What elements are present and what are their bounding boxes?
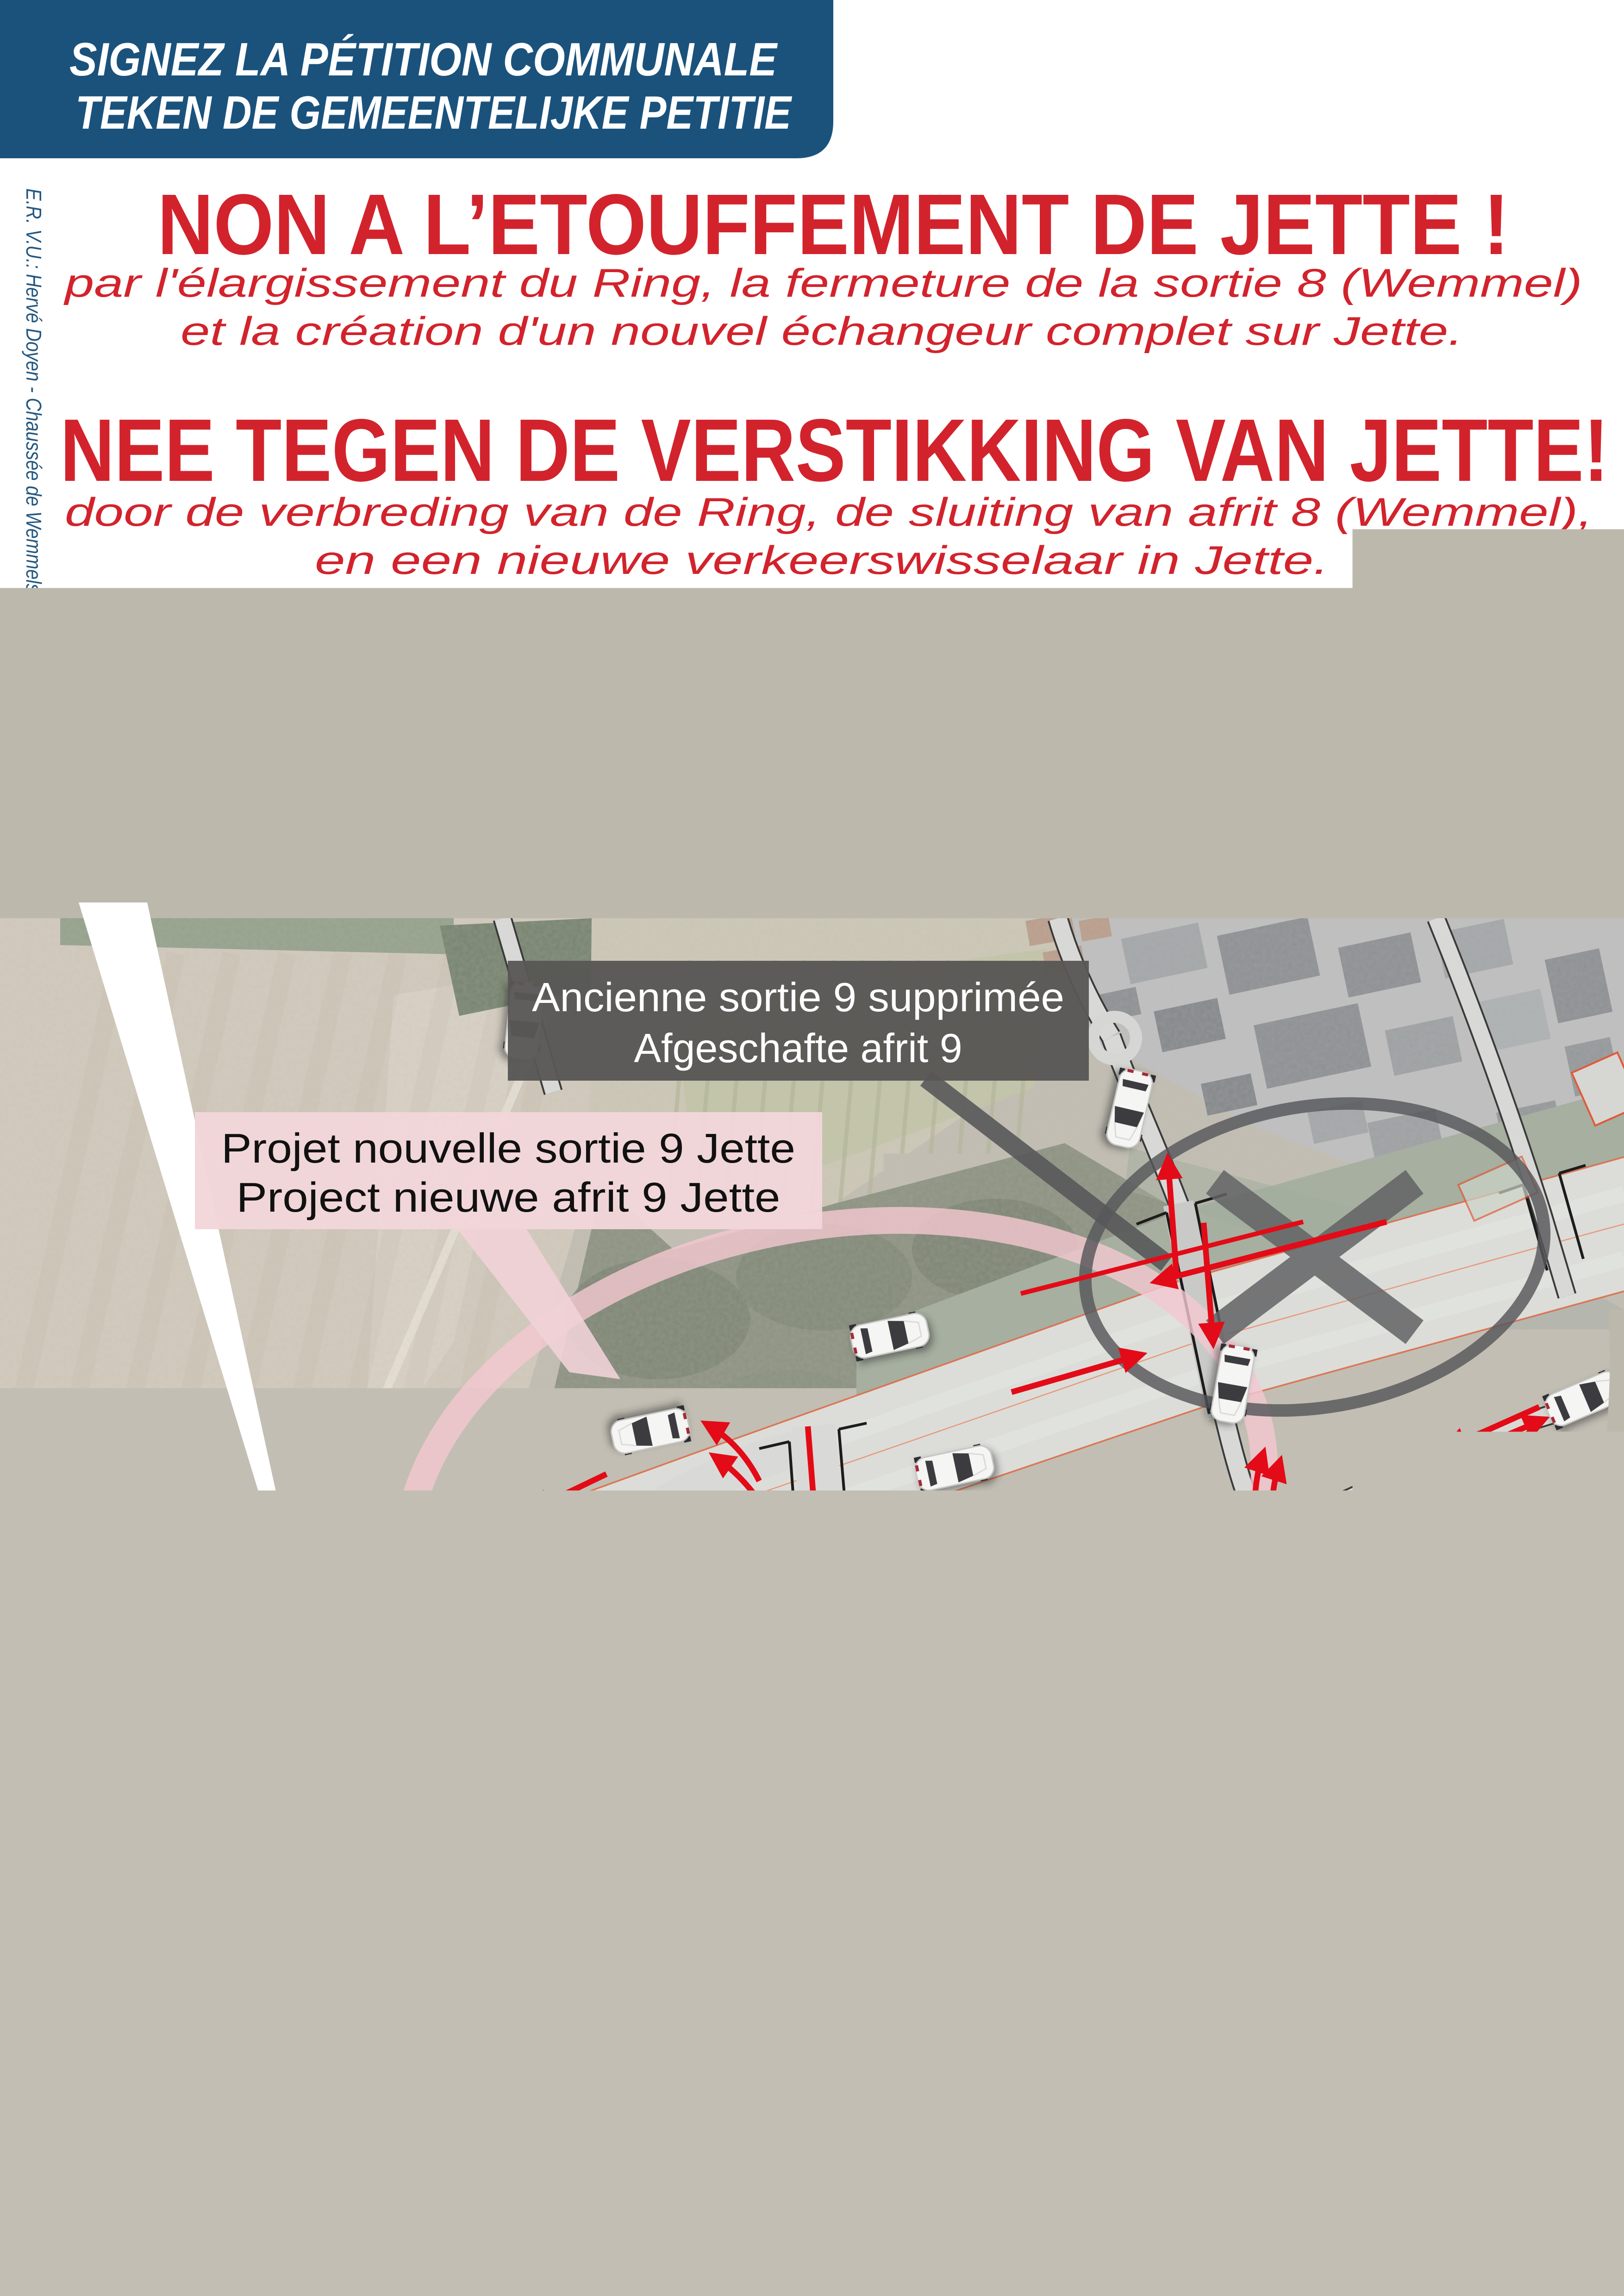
svg-text:E.R. V.U.: Hervé Doyen - Chaus: E.R. V.U.: Hervé Doyen - Chaussée de Wem… bbox=[22, 188, 46, 820]
svg-text:Jette: Jette bbox=[1305, 2122, 1605, 2252]
svg-text:tie op www.jette.be of op papi: tie op www.jette.be of op papier: in het… bbox=[70, 1994, 686, 2030]
svg-text:par l'élargissement du Ring, l: par l'élargissement du Ring, la fermetur… bbox=[63, 261, 1582, 305]
svg-text:door de verbreding van de Ring: door de verbreding van de Ring, de sluit… bbox=[65, 490, 1593, 535]
svg-text:en een nieuwe verkeerswisselaa: en een nieuwe verkeerswisselaar in Jette… bbox=[315, 538, 1329, 583]
svg-text:Tentoonstellingslaan: Tentoonstellingslaan bbox=[1391, 1671, 1581, 1697]
svg-text:Culturel ou au GC Essegem - Te: Culturel ou au GC Essegem - Teken de pet… bbox=[70, 1958, 686, 1994]
svg-text:Une action du Collège des Bour: Une action du Collège des Bourgmestre et… bbox=[70, 2138, 1087, 2163]
svg-text:NON A L’ETOUFFEMENT DE JETTE !: NON A L’ETOUFFEMENT DE JETTE ! bbox=[157, 177, 1509, 273]
svg-text:dans les bibliothèques communa: dans les bibliothèques communales, au Ce… bbox=[70, 1921, 686, 1957]
svg-text:meentehuis, in het OCMW, in de: meentehuis, in het OCMW, in de BIB, in G… bbox=[70, 2031, 686, 2067]
svg-text:Jardins de Jette: Jardins de Jette bbox=[962, 1999, 1130, 2026]
svg-text:TEKEN DE GEMEENTELIJKE PETITIE: TEKEN DE GEMEENTELIJKE PETITIE bbox=[75, 87, 792, 139]
svg-text:Ancienne sortie 9 supprimée: Ancienne sortie 9 supprimée bbox=[532, 974, 1064, 1020]
svg-text:Afgeschafte afrit 9: Afgeschafte afrit 9 bbox=[634, 1025, 962, 1071]
svg-text:Av. de l'Arbre Ballon: Av. de l'Arbre Ballon bbox=[942, 1512, 1155, 1539]
svg-text:gem of het Centre Culturel.: gem of het Centre Culturel. bbox=[70, 2067, 459, 2103]
svg-text:NEE TEGEN DE VERSTIKKING VAN J: NEE TEGEN DE VERSTIKKING VAN JETTE! bbox=[60, 400, 1609, 500]
svg-text:Projet nouvelle sortie 9 Jette: Projet nouvelle sortie 9 Jette bbox=[221, 1126, 795, 1172]
svg-text:SIGNEZ LA PÉTITION COMMUNALE: SIGNEZ LA PÉTITION COMMUNALE bbox=[69, 34, 778, 86]
svg-text:12 BANDES / RIJSTROKEN: 12 BANDES / RIJSTROKEN bbox=[103, 689, 495, 722]
svg-text:sur papier : à la maison commu: sur papier : à la maison communale, au C… bbox=[70, 1885, 686, 1921]
svg-text:en Leefmilieu Claire Vandevive: en Leefmilieu Claire Vandevivere. bbox=[70, 2228, 430, 2253]
svg-text:du Développement durable et de: du Développement durable et de l'Environ… bbox=[70, 2168, 1082, 2193]
svg-text:Av. de l'Exposition: Av. de l'Exposition bbox=[1389, 1643, 1580, 1669]
svg-text:et la création d'un nouvel éch: et la création d'un nouvel échangeur com… bbox=[181, 309, 1463, 354]
svg-text:Project nieuwe afrit 9 Jette: Project nieuwe afrit 9 Jette bbox=[237, 1175, 781, 1221]
svg-text:gemeester en Schepenen van de: gemeester en Schepenen van de Gemeente J… bbox=[70, 2198, 1075, 2223]
svg-text:Dikke Beuklaan: Dikke Beuklaan bbox=[943, 1540, 1107, 1567]
svg-text:Tuinen van Jette: Tuinen van Jette bbox=[963, 2027, 1136, 2053]
